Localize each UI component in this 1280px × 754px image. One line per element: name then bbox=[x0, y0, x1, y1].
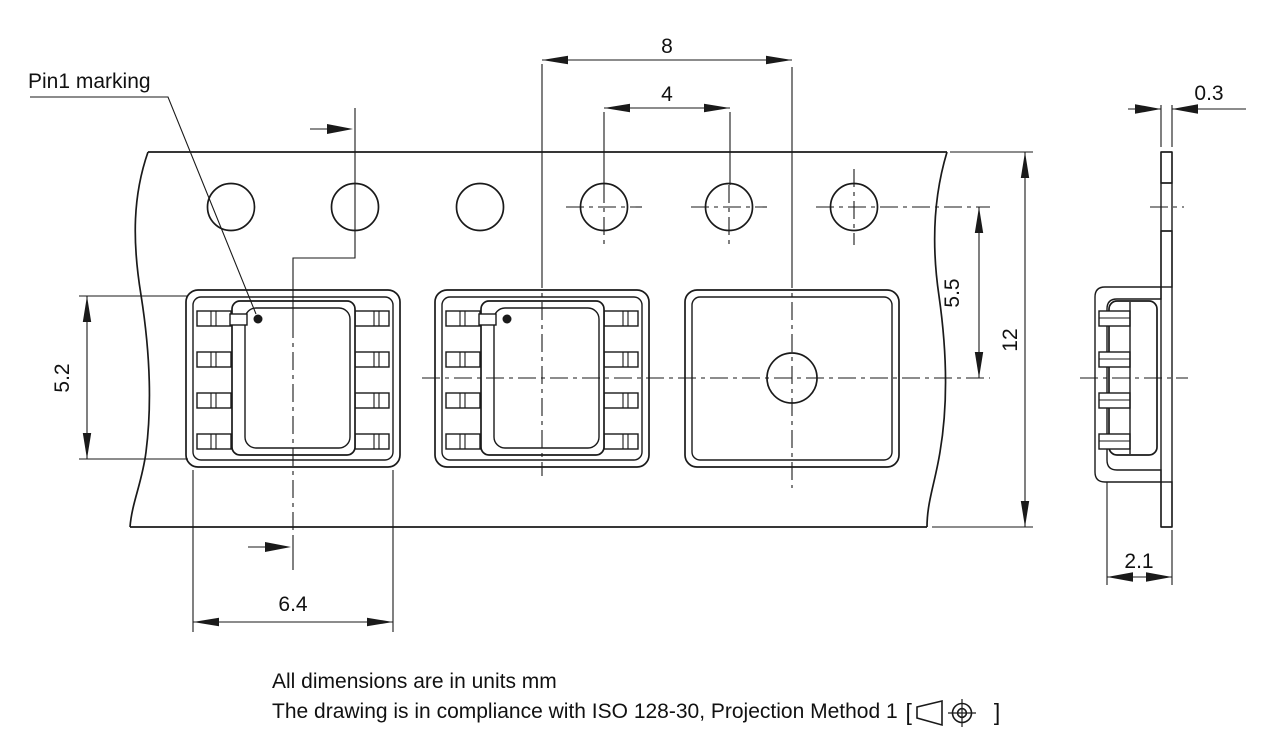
package-leads-right bbox=[604, 311, 638, 449]
package-body-top bbox=[245, 308, 350, 448]
tape-side-edges bbox=[1161, 152, 1172, 527]
front-view-tape bbox=[130, 64, 990, 570]
drawing-canvas: 8 4 12 5.5 5.2 6.4 Pin1 marking bbox=[0, 0, 1280, 754]
sprocket-hole bbox=[457, 184, 504, 231]
dim-hole-pitch: 4 bbox=[661, 83, 673, 106]
dim-pocket-depth-group: 2.1 bbox=[1107, 482, 1172, 585]
dim-cavity-width: 6.4 bbox=[278, 593, 308, 616]
dim-hole-to-pocket-center: 5.5 bbox=[941, 278, 964, 307]
dim-tape-thickness-group: 0.3 bbox=[1128, 82, 1246, 147]
pin1-notch bbox=[230, 314, 247, 325]
pin1-leader-line bbox=[30, 97, 256, 314]
dim-cavity-length: 5.2 bbox=[51, 363, 74, 392]
dim-pocket-pitch: 8 bbox=[661, 35, 673, 58]
note-compliance-text: The drawing is in compliance with ISO 12… bbox=[272, 699, 904, 725]
note-compliance: The drawing is in compliance with ISO 12… bbox=[272, 695, 1002, 729]
note-units: All dimensions are in units mm bbox=[272, 669, 1002, 695]
sprocket-holes bbox=[208, 169, 991, 246]
package-leads-left bbox=[446, 311, 480, 449]
projection-method-1-icon bbox=[914, 696, 992, 730]
section-line-step bbox=[293, 108, 355, 320]
pin1-dot bbox=[503, 315, 512, 324]
tape-right-break-line bbox=[927, 152, 947, 527]
section-arrow-top bbox=[327, 124, 353, 134]
section-arrow-bottom bbox=[265, 542, 291, 552]
side-view: 0.3 2.1 bbox=[1080, 82, 1246, 585]
carrier-tape-drawing: 8 4 12 5.5 5.2 6.4 Pin1 marking bbox=[0, 0, 1280, 754]
dim-tape-thickness: 0.3 bbox=[1194, 82, 1223, 105]
dim-tape-width: 12 bbox=[999, 328, 1022, 351]
bracket-open: [ bbox=[904, 699, 914, 725]
pin1-marking-label: Pin1 marking bbox=[28, 70, 151, 93]
drawing-notes: All dimensions are in units mm The drawi… bbox=[272, 669, 1002, 729]
bracket-close: ] bbox=[992, 699, 1002, 725]
package-leads-left bbox=[197, 311, 231, 449]
sprocket-hole bbox=[208, 184, 255, 231]
pin1-dot bbox=[254, 315, 263, 324]
pin1-notch bbox=[479, 314, 496, 325]
package-leads-right bbox=[355, 311, 389, 449]
dim-pocket-depth: 2.1 bbox=[1124, 550, 1153, 573]
tape-left-break-line bbox=[130, 152, 149, 527]
